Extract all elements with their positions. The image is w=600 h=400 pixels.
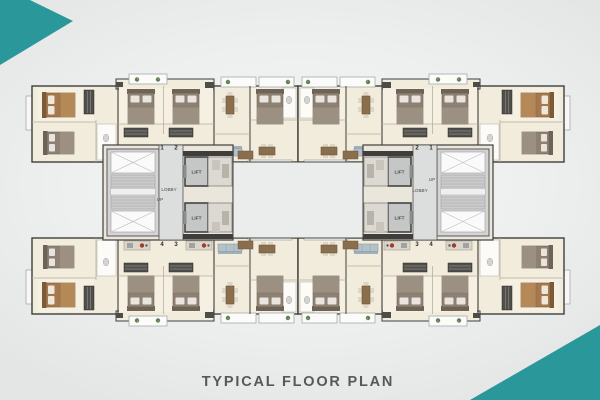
left-lift-bottom-label: LIFT: [191, 216, 201, 222]
right-up-label: UP: [429, 177, 435, 182]
teal-corner-decoration-bottom-right: [470, 325, 600, 400]
left-lobby-label: LOBBY: [161, 187, 176, 192]
teal-corner-decoration-top-left: [0, 0, 73, 65]
left-lift-top-label: LIFT: [191, 170, 201, 176]
floor-plan-page: LIFT LIFT LIFT LIFT LOBBY UP LOBBY UP 1 …: [0, 0, 600, 400]
page-title: TYPICAL FLOOR PLAN: [202, 374, 394, 390]
floor-plan-drawing: LIFT LIFT LIFT LIFT LOBBY UP LOBBY UP 1 …: [0, 0, 600, 400]
right-lift-top-label: LIFT: [394, 170, 404, 176]
central-courtyard: [233, 162, 363, 238]
right-lift-bottom-label: LIFT: [394, 216, 404, 222]
right-lobby-label: LOBBY: [412, 188, 427, 193]
left-up-label: UP: [157, 197, 163, 202]
